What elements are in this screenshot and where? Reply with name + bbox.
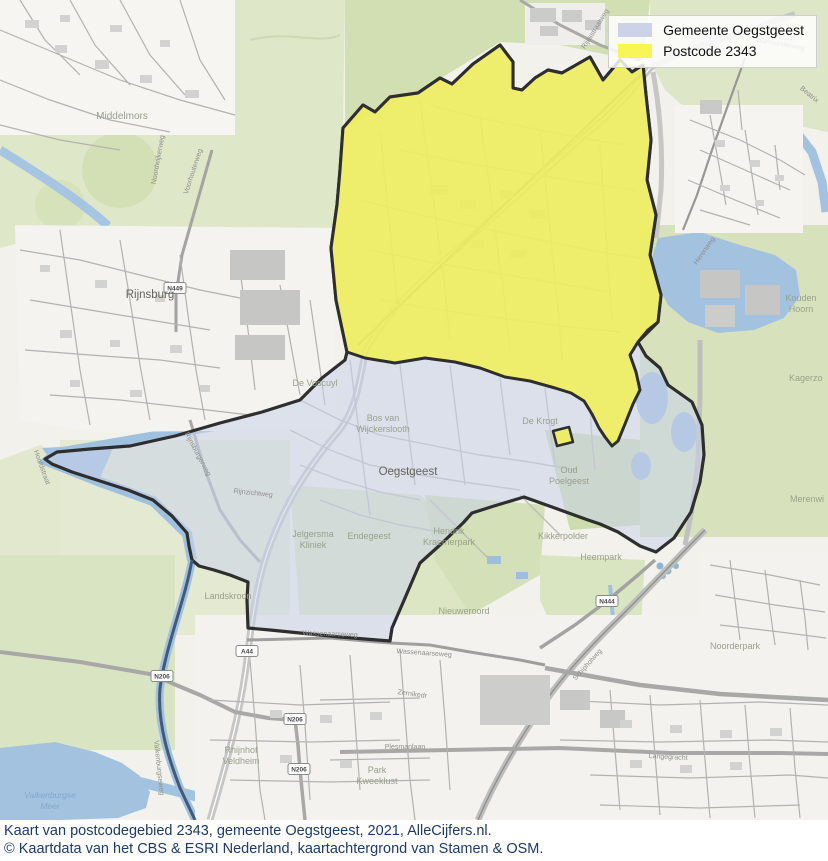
map-label-heempark: Heempark [580, 552, 622, 562]
map-label-kikkerpolder: Kikkerpolder [538, 531, 588, 541]
map-label-nieuweroord: Nieuweroord [438, 606, 489, 616]
map-label-poelgeest: Poelgeest [549, 476, 590, 486]
map-image: N449 A44 N444 N206 N206 N206 Middelmors … [0, 0, 828, 820]
road-badge-label: N206 [287, 717, 303, 724]
map-label-oegstgeest: Oegstgeest [379, 466, 439, 478]
road-badge-label: N444 [599, 599, 615, 606]
caption-line-1: Kaart van postcodegebied 2343, gemeente … [4, 823, 828, 841]
caption-line-2: © Kaartdata van het CBS & ESRI Nederland… [4, 841, 828, 859]
map-label-kliniek: Kliniek [300, 540, 327, 550]
legend-label-municipality: Gemeente Oegstgeest [663, 22, 804, 38]
map-canvas: N449 A44 N444 N206 N206 N206 Middelmors … [0, 0, 828, 820]
legend-swatch-postcode-icon [618, 44, 652, 58]
road-badge: N206 [151, 671, 173, 682]
map-label-kagerzoom: Kagerzo [789, 373, 823, 383]
road-badge: N444 [596, 596, 618, 607]
road-badge-label: N206 [291, 767, 307, 774]
map-label-endegeest: Endegeest [347, 531, 391, 541]
map-label-merenwijk: Merenwi [790, 494, 824, 504]
map-label-noorderpark: Noorderpark [710, 641, 761, 651]
map-label-veldheim: Veldheim [222, 756, 259, 766]
map-label-meer: Meer [40, 801, 61, 811]
map-label-hendrik: Hendrik [433, 526, 465, 536]
legend-swatch-municipality-icon [618, 23, 652, 37]
map-label-middelmors: Middelmors [96, 111, 148, 122]
road-badge: N206 [288, 764, 310, 775]
map-label-oud: Oud [560, 465, 577, 475]
road-badge-label: N206 [154, 674, 170, 681]
map-label-landskroon: Landskroon [204, 591, 251, 601]
road-badge: N206 [284, 714, 306, 725]
map-label-jelgersma: Jelgersma [292, 529, 334, 539]
map-label-valkenburgse: Valkenburgse [24, 790, 76, 800]
map-label-plesmanlaan: Plesmanlaan [385, 744, 426, 751]
map-label-kraemerpark: Kraemerpark [423, 537, 476, 547]
map-label-kouden: Kouden [785, 293, 816, 303]
legend: Gemeente Oegstgeest Postcode 2343 [608, 15, 817, 68]
map-label-rhijnhof: Rhijnhof [224, 745, 258, 755]
legend-label-postcode: Postcode 2343 [663, 43, 756, 59]
caption: Kaart van postcodegebied 2343, gemeente … [0, 820, 828, 858]
map-label-de-krogt: De Krogt [522, 416, 558, 426]
map-label-wijckerslooth: Wijckerslooth [356, 424, 410, 434]
legend-row-postcode: Postcode 2343 [618, 43, 804, 59]
postcode-exclave [553, 427, 573, 446]
road-badge: A44 [236, 646, 258, 657]
road-badge-label: A44 [241, 649, 253, 656]
map-label-rijnsburg: Rijnsburg [126, 289, 175, 301]
map-label-hoorn: Hoorn [789, 304, 814, 314]
map-label-park: Park [368, 765, 387, 775]
map-label-kweeklust: Kweeklust [356, 776, 398, 786]
map-label-de-voscuyl: De Voscuyl [292, 378, 337, 388]
legend-row-municipality: Gemeente Oegstgeest [618, 22, 804, 38]
map-label-bos-van: Bos van [367, 413, 400, 423]
